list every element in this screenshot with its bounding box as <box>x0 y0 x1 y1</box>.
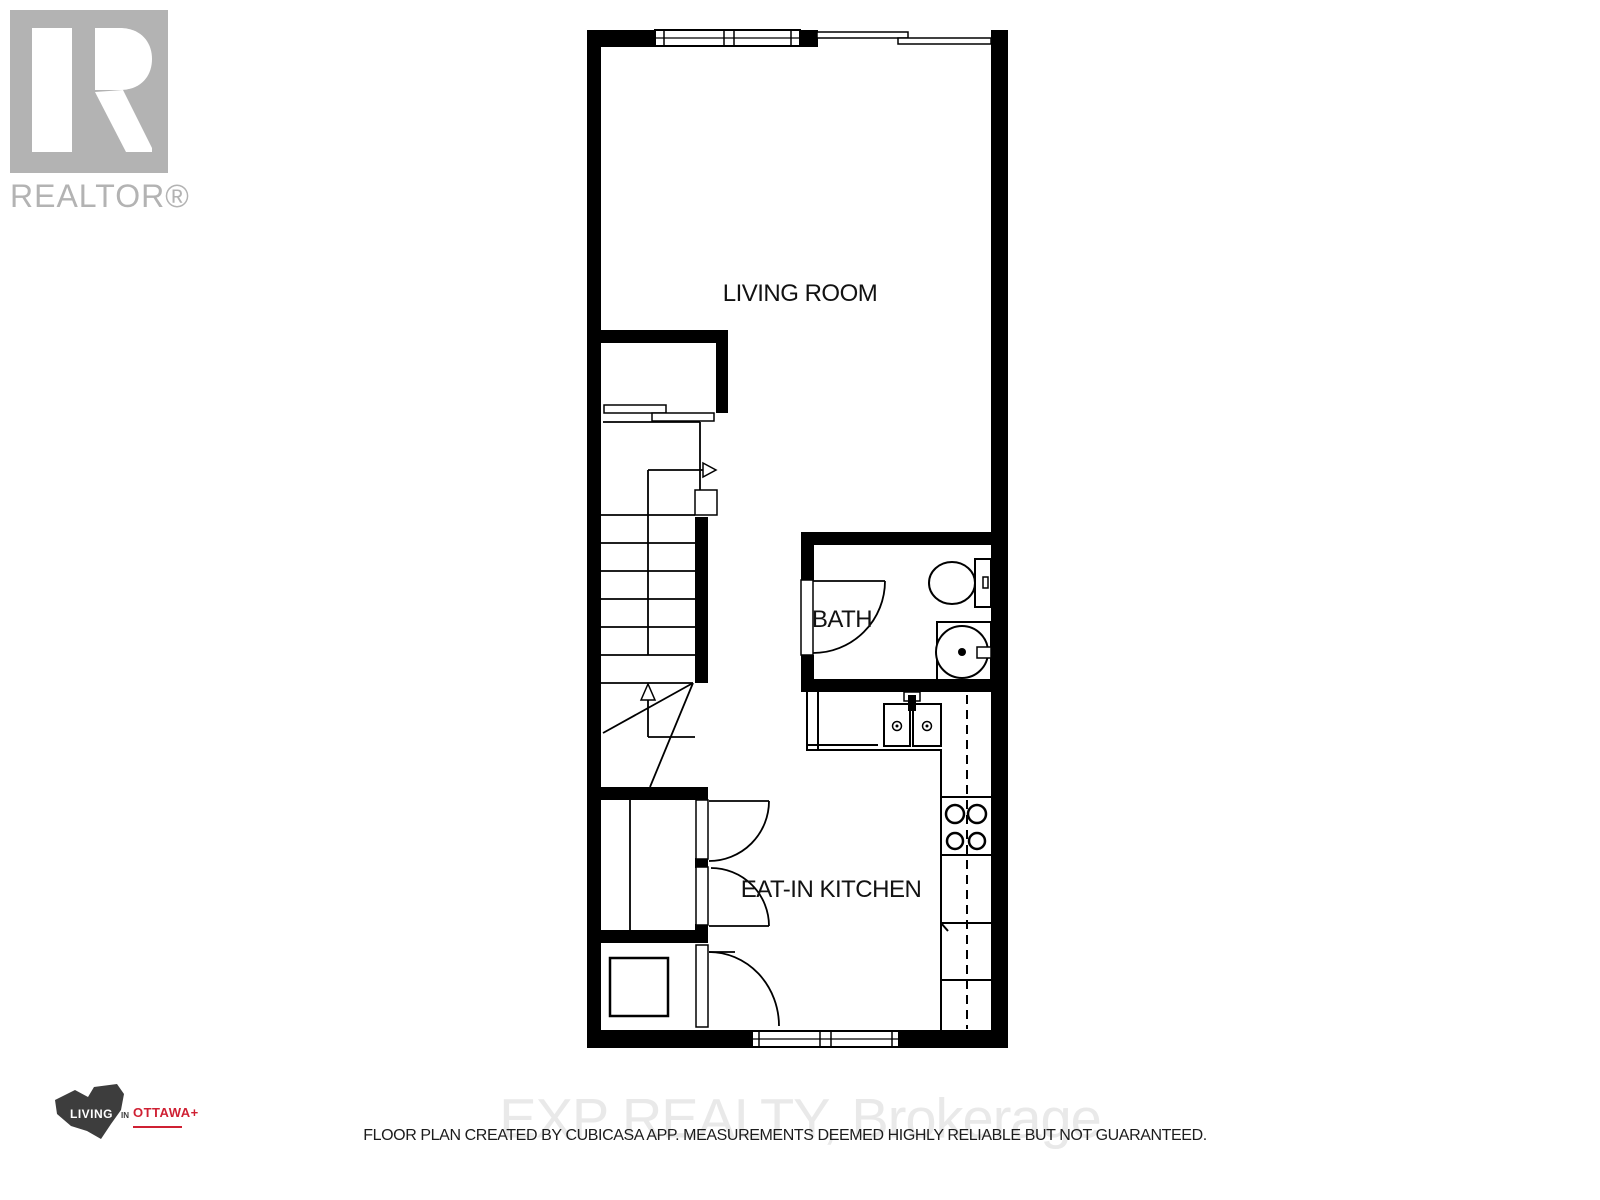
living-room-label: LIVING ROOM <box>723 282 878 306</box>
disclaimer-text: FLOOR PLAN CREATED BY CUBICASA APP. MEAS… <box>363 1127 1207 1145</box>
eat-in-kitchen-label: EAT-IN KITCHEN <box>741 878 922 902</box>
ottawa-logo-in-text: IN <box>121 1111 129 1120</box>
ottawa-logo-underline <box>133 1126 182 1128</box>
ottawa-logo-ottawa-text: OTTAWA+ <box>133 1105 199 1120</box>
ottawa-logo-living-text: LIVING <box>70 1107 113 1121</box>
toilet-icon <box>929 559 991 607</box>
stove-icon <box>946 805 986 849</box>
kitchen-sink-icon <box>884 692 941 746</box>
sliding-patio-door-icon <box>817 32 991 44</box>
realtor-logo-icon <box>10 10 168 173</box>
bathroom-sink-icon <box>936 622 991 682</box>
realtor-logo-label: REALTOR® <box>10 178 190 215</box>
floor-plan <box>0 0 1600 1200</box>
door-frames <box>696 580 813 1027</box>
bath-label: BATH <box>812 608 872 632</box>
swing-door-icons <box>709 581 885 1026</box>
appliance-icon <box>610 958 668 1016</box>
closet-sliding-doors-icon <box>604 405 714 421</box>
